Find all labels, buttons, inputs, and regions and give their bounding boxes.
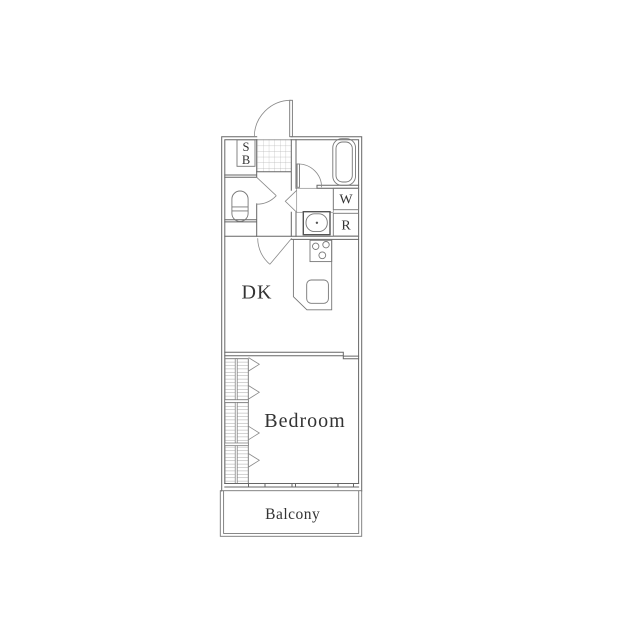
refrigerator-label: R (341, 219, 351, 234)
washing-machine-label: W (339, 193, 353, 208)
genkan-tile-floor (257, 140, 292, 172)
balcony: Balcony (220, 491, 361, 537)
floorplan-drawing: S B W R (0, 0, 640, 640)
washbasin (303, 212, 330, 235)
entry-door-swing-arc (254, 100, 291, 137)
closet (225, 358, 259, 484)
toilet-room (232, 177, 276, 221)
bathroom-door-swing-arc (298, 164, 321, 187)
bathtub (333, 139, 356, 186)
shoe-box-label-s: S (243, 140, 250, 154)
closet-door-marks (249, 358, 260, 467)
partition-wall (225, 352, 359, 358)
washroom-tile-floor (297, 188, 334, 212)
washroom-door (285, 190, 296, 212)
stove (310, 240, 332, 261)
refrigerator-box: R (333, 213, 358, 236)
washing-machine-box: W (333, 188, 358, 209)
washbasin-faucet-dot (316, 222, 318, 224)
kitchen-sink (307, 280, 329, 303)
toilet (232, 191, 248, 222)
entry-door-leaf (290, 100, 293, 136)
kitchen-counter (293, 239, 331, 309)
toilet-door (257, 177, 277, 204)
shoe-box-label-b: B (242, 153, 250, 167)
closet-center-divider (235, 359, 237, 484)
bathroom (297, 139, 355, 188)
bathroom-door (297, 164, 322, 187)
bedroom-label: Bedroom (264, 410, 345, 432)
balcony-label: Balcony (265, 506, 320, 523)
bedroom-window (225, 484, 359, 488)
dk-door (258, 238, 292, 264)
dk-room-label: DK (242, 282, 273, 304)
shoe-box: S B (237, 140, 255, 167)
bathroom-door-leaf (297, 164, 299, 187)
entry-door (254, 100, 292, 137)
floorplan-canvas: S B W R (0, 0, 640, 640)
